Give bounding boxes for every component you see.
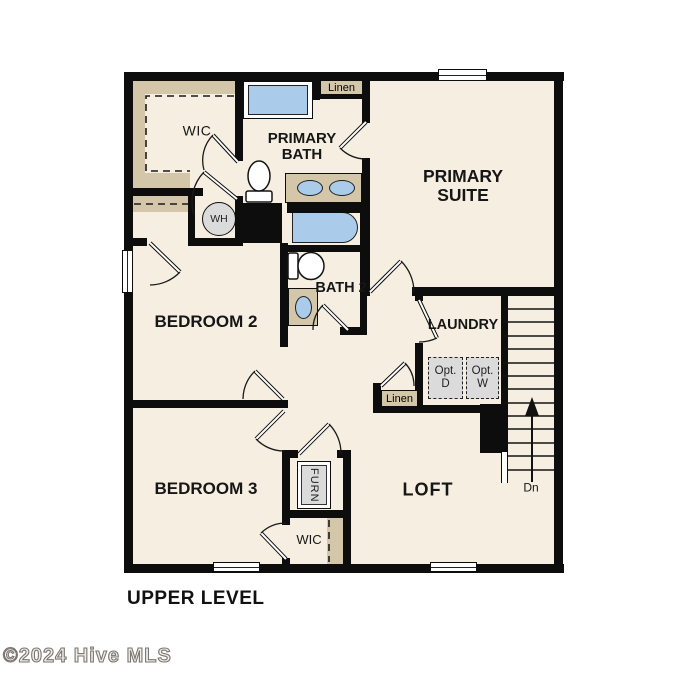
window <box>122 250 133 293</box>
floor-plan-page: Linen Linen WH Opt. D Opt. W FURN <box>0 0 687 687</box>
stairs-dn-label: Dn <box>523 482 538 495</box>
wall-segment <box>360 203 367 333</box>
optional-washer-label: Opt. W <box>470 365 496 390</box>
wall-segment <box>282 510 351 518</box>
wall-segment <box>280 243 288 347</box>
wall-segment <box>282 513 290 525</box>
room-label-bedroom2: BEDROOM 2 <box>106 313 306 331</box>
wall-segment <box>124 400 284 408</box>
window <box>438 69 487 81</box>
wall-segment <box>235 203 282 243</box>
wall-segment <box>287 203 367 213</box>
shower-pan <box>248 85 308 115</box>
room-label-laundry: LAUNDRY <box>403 318 523 334</box>
closet-shelf <box>133 81 235 94</box>
wall-segment <box>133 238 147 246</box>
wall-segment <box>343 450 351 564</box>
wall-segment <box>124 564 564 573</box>
level-title: UPPER LEVEL <box>127 588 264 610</box>
wall-segment <box>362 81 370 123</box>
optional-washer: Opt. W <box>466 357 499 399</box>
wall-segment <box>501 289 508 408</box>
wall-segment <box>415 405 481 413</box>
wall-segment <box>133 188 203 196</box>
linen-label: Linen <box>386 393 413 405</box>
room-label-primary-bath: PRIMARY BATH <box>256 131 348 163</box>
sink-basin <box>329 180 355 196</box>
closet-shelf <box>133 196 188 212</box>
bathtub <box>292 212 358 243</box>
furnace-label: FURN <box>308 468 320 503</box>
wall-segment <box>235 81 243 161</box>
room-label-bath2: BATH 2 <box>314 281 368 297</box>
linen-closet: Linen <box>320 80 363 95</box>
closet-shelf <box>327 518 343 564</box>
optional-dryer-label: Opt. D <box>433 365 459 390</box>
room-label-bedroom3: BEDROOM 3 <box>106 480 306 498</box>
sink-basin <box>297 180 323 196</box>
stair-landing-block <box>480 404 508 453</box>
closet-shelf <box>133 173 190 188</box>
wall-segment <box>554 72 563 573</box>
wall-segment <box>288 245 367 252</box>
water-heater-label: WH <box>210 213 228 225</box>
window <box>213 562 260 572</box>
wall-segment <box>412 287 563 296</box>
linen-label: Linen <box>328 82 355 94</box>
wall-segment <box>282 558 290 564</box>
closet-shelf <box>133 81 145 188</box>
room-label-wic-primary: WIC <box>183 123 212 138</box>
optional-dryer: Opt. D <box>428 357 463 399</box>
window <box>430 562 477 572</box>
room-label-loft: LOFT <box>403 480 454 499</box>
room-label-primary-suite: PRIMARY SUITE <box>403 167 523 205</box>
room-label-wic-bedroom3: WIC <box>296 533 321 547</box>
stair-rail-opening <box>501 452 508 483</box>
wall-segment <box>415 289 423 301</box>
water-heater: WH <box>202 202 236 236</box>
mls-watermark: ©2024 Hive MLS <box>3 645 172 668</box>
wall-segment <box>340 327 367 335</box>
linen-closet: Linen <box>381 390 418 407</box>
